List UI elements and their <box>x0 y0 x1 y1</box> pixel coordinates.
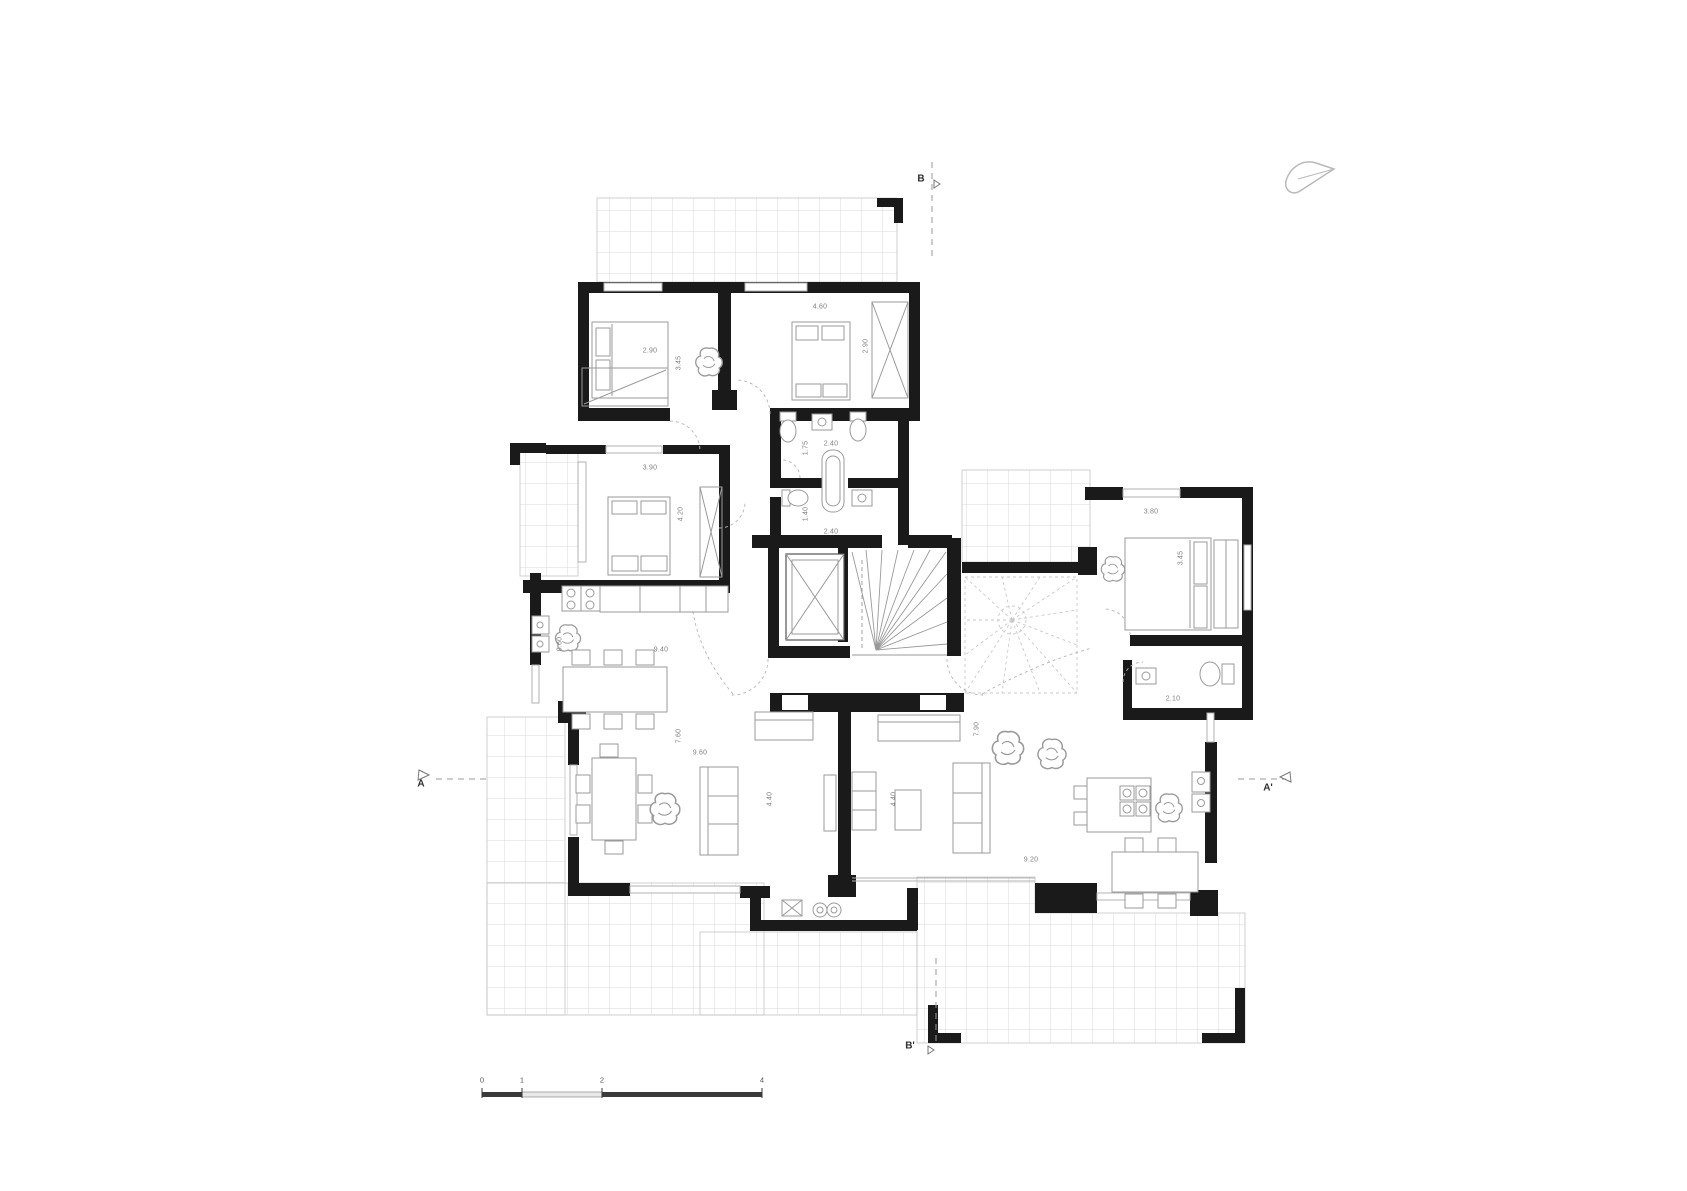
tv-cabinet <box>852 772 876 830</box>
window <box>1244 545 1251 610</box>
terrace-left-upper <box>520 448 578 576</box>
north-arrow-icon <box>1286 162 1334 193</box>
washbasin <box>852 490 872 506</box>
door-arc <box>736 380 770 414</box>
bathtub <box>822 450 844 512</box>
cooktop <box>562 586 600 611</box>
window <box>604 283 662 291</box>
toilet <box>850 412 866 441</box>
section-arrow-icon <box>418 770 429 780</box>
bed <box>1125 538 1211 630</box>
plant-icon <box>1038 739 1066 769</box>
bed <box>792 322 850 400</box>
plant-icon <box>556 625 581 651</box>
kitchen-sink <box>1192 772 1210 812</box>
washbasin <box>812 414 832 430</box>
window <box>1207 713 1214 742</box>
plant-icon <box>992 731 1023 764</box>
bed <box>592 322 668 398</box>
toilet <box>1200 662 1234 686</box>
kitchen-counter <box>600 586 728 612</box>
section-arrow-icon <box>934 180 940 188</box>
window <box>578 462 586 562</box>
bed <box>608 497 670 575</box>
kitchen-sink <box>532 616 549 652</box>
terrace-bottom-middle <box>700 932 917 1015</box>
window <box>745 283 807 291</box>
scale-bar <box>482 1088 762 1098</box>
section-arrow-icon <box>1280 772 1291 782</box>
door-arc <box>732 659 768 695</box>
terrace-lightwell <box>962 470 1090 562</box>
window <box>606 446 662 453</box>
walk-line <box>693 612 733 694</box>
dining-table <box>576 744 652 854</box>
kitchen-island <box>1074 778 1151 832</box>
dining-table <box>563 650 667 729</box>
wardrobe <box>700 487 722 577</box>
window <box>1123 489 1180 497</box>
coffee-table <box>895 790 921 830</box>
hvac-units <box>782 900 841 917</box>
elevator <box>786 554 844 640</box>
washbasin <box>1136 668 1156 684</box>
sofa <box>755 712 813 740</box>
floor-plan-drawing <box>0 0 1687 1191</box>
floor-plan-sheet: 4.602.903.452.903.904.202.401.752.401.40… <box>0 0 1687 1191</box>
door-arc <box>782 460 800 478</box>
window <box>532 665 539 703</box>
plant-icon <box>696 348 723 376</box>
walk-line <box>982 648 1092 694</box>
toilet <box>780 412 796 442</box>
terrace-top <box>597 198 897 282</box>
section-arrow-icon <box>928 1046 934 1054</box>
sofa <box>700 767 738 855</box>
toilet <box>782 490 808 506</box>
plant-icon <box>1156 794 1183 822</box>
wardrobe <box>872 302 908 398</box>
sofa <box>878 715 960 741</box>
window <box>630 886 740 893</box>
plant-icon <box>1101 557 1124 582</box>
stair-main <box>852 550 947 655</box>
plant-icon <box>650 793 680 824</box>
sofa <box>953 763 990 853</box>
tv-cabinet <box>824 775 836 831</box>
stair-dashed <box>965 577 1077 693</box>
wardrobe <box>1214 540 1238 628</box>
